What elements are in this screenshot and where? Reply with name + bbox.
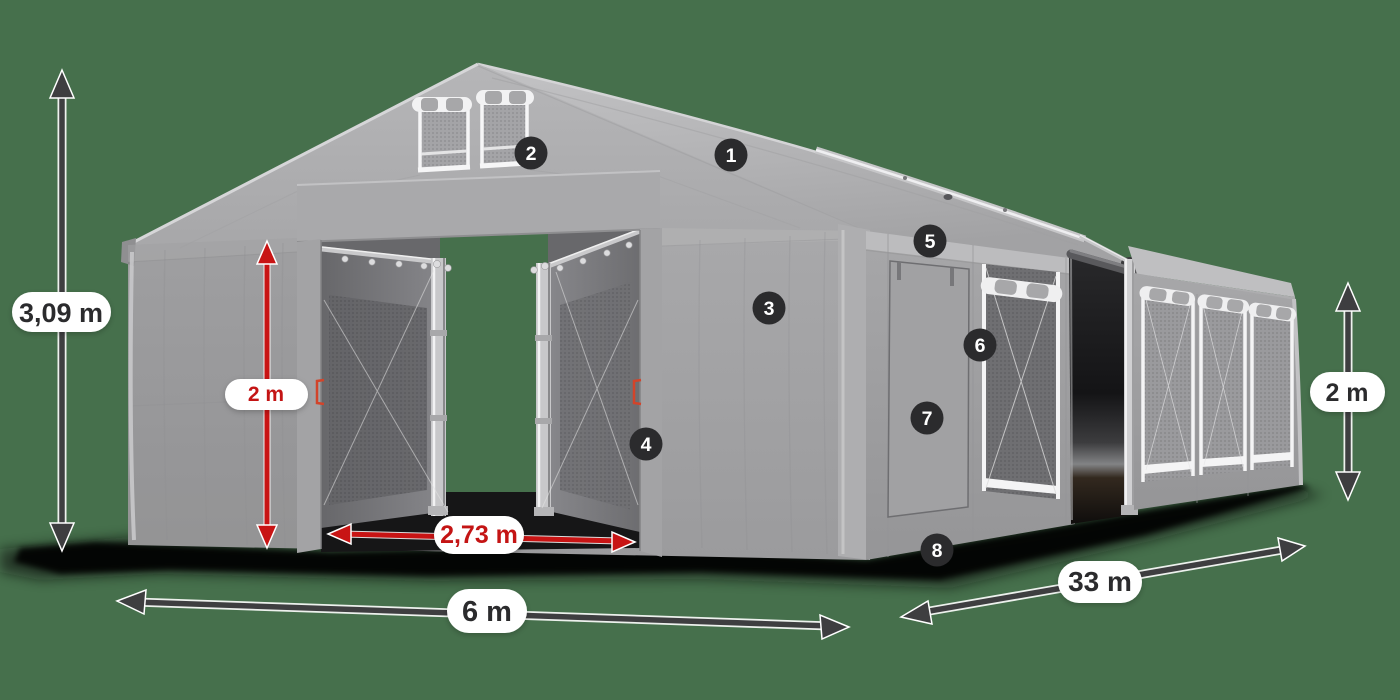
svg-text:8: 8 bbox=[932, 540, 943, 562]
svg-text:6 m: 6 m bbox=[462, 596, 512, 628]
svg-text:2: 2 bbox=[526, 143, 537, 165]
svg-text:2 m: 2 m bbox=[1325, 379, 1368, 407]
svg-text:5: 5 bbox=[925, 231, 936, 253]
svg-text:33 m: 33 m bbox=[1068, 566, 1132, 597]
svg-text:4: 4 bbox=[641, 434, 652, 456]
svg-text:3,09 m: 3,09 m bbox=[19, 298, 103, 328]
svg-text:7: 7 bbox=[922, 408, 933, 430]
svg-text:1: 1 bbox=[726, 145, 737, 167]
svg-text:2,73 m: 2,73 m bbox=[440, 521, 518, 549]
svg-text:6: 6 bbox=[975, 335, 986, 357]
svg-text:2 m: 2 m bbox=[248, 383, 284, 406]
svg-text:3: 3 bbox=[764, 298, 775, 320]
